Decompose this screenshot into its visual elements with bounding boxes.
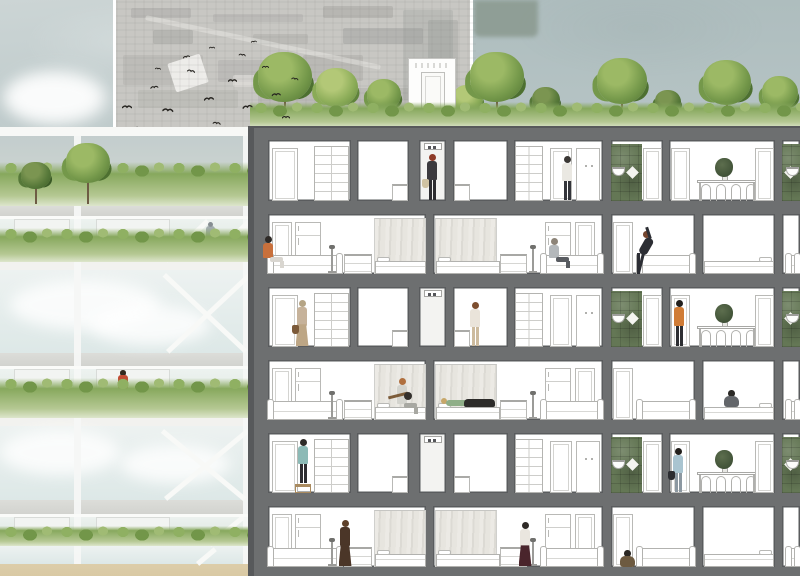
tall-cabinet xyxy=(576,295,600,347)
indicator-light xyxy=(433,439,436,442)
dining-table-leg xyxy=(699,183,701,201)
fridge-split xyxy=(546,381,570,382)
person-sitting xyxy=(396,378,420,414)
door-frame-inner xyxy=(758,151,771,199)
sofa-back xyxy=(637,401,695,420)
wardrobe-shelves xyxy=(515,146,543,201)
person-head xyxy=(265,236,272,243)
dining-chair xyxy=(716,330,726,347)
sofa-arm xyxy=(540,399,547,420)
person-sitting-floor xyxy=(618,550,638,567)
plant-foliage xyxy=(715,158,733,177)
door-frame-inner xyxy=(674,151,687,199)
step-stool xyxy=(295,484,311,493)
person-standing xyxy=(293,300,313,347)
bed xyxy=(436,554,500,567)
person-leg xyxy=(568,181,571,200)
door-frame xyxy=(550,441,572,493)
bed-pillow xyxy=(759,550,772,555)
bed-pillow xyxy=(377,403,390,408)
sofa-arm xyxy=(785,253,792,274)
indicator-light xyxy=(433,293,436,296)
fridge-handle xyxy=(298,530,299,537)
person-leg xyxy=(300,464,303,483)
bed xyxy=(704,554,774,567)
cabinet-unit xyxy=(454,184,470,201)
elevator-indicator xyxy=(424,143,442,150)
person-skirt xyxy=(519,545,532,566)
person-head xyxy=(399,378,406,385)
door-frame-inner xyxy=(758,444,771,491)
bed xyxy=(375,554,426,567)
person-leg xyxy=(433,180,436,200)
plant-foliage xyxy=(715,450,733,469)
person-head xyxy=(676,300,683,307)
bed-pillow xyxy=(438,257,451,262)
door-frame xyxy=(643,148,662,201)
wardrobe-shelves xyxy=(314,146,349,201)
cabinet-unit xyxy=(454,476,470,493)
door-frame-inner xyxy=(275,298,295,345)
dining-chair xyxy=(701,184,711,201)
door-frame xyxy=(671,148,690,201)
person-skirt xyxy=(339,544,352,566)
fridge-split xyxy=(296,527,320,528)
cabinet-handle xyxy=(591,312,593,314)
fridge-handle xyxy=(298,238,299,245)
person-torso xyxy=(298,446,308,465)
door-frame-inner xyxy=(758,298,771,345)
guitar-body xyxy=(404,392,412,400)
fridge-handle xyxy=(298,226,299,231)
person-leg xyxy=(429,180,432,200)
elevator-indicator xyxy=(424,436,442,443)
sofa-back xyxy=(637,548,695,567)
person-torso xyxy=(263,243,273,258)
person-standing xyxy=(516,522,536,567)
floor-lamp-base xyxy=(328,564,337,566)
fridge-split xyxy=(296,381,320,382)
cabinet-handle xyxy=(585,458,587,460)
door-frame-inner xyxy=(616,371,630,418)
door-frame-inner xyxy=(646,298,659,345)
person-head xyxy=(564,156,571,163)
plant-foliage xyxy=(715,304,733,323)
sofa-arm xyxy=(597,399,604,420)
dining-chair xyxy=(731,330,741,347)
person-standing xyxy=(423,154,443,201)
floor-lamp-stem xyxy=(331,393,333,418)
person-bag xyxy=(422,179,429,188)
sofa-arm xyxy=(794,253,800,274)
person-torso xyxy=(562,163,572,182)
floor-lamp-base xyxy=(529,271,538,273)
person-leg xyxy=(472,327,475,346)
person-torso xyxy=(340,527,350,547)
wardrobe-shelves xyxy=(314,293,349,347)
floor-lamp-shade xyxy=(329,538,336,542)
door-frame-inner xyxy=(275,151,295,199)
fridge-split xyxy=(296,235,320,236)
cabinet-unit xyxy=(392,184,408,201)
architectural-collage xyxy=(0,0,800,576)
fridge-handle xyxy=(548,226,549,231)
sofa-back xyxy=(541,548,603,567)
cabinet-handle xyxy=(591,165,593,167)
bed xyxy=(436,261,500,274)
person-sitting xyxy=(548,238,572,268)
door-frame xyxy=(643,295,662,347)
door-frame xyxy=(755,148,774,201)
wardrobe-shelves xyxy=(515,293,543,347)
sofa-arm xyxy=(597,546,604,567)
dining-table-leg xyxy=(699,329,701,347)
person-lying xyxy=(441,397,495,407)
person-head xyxy=(551,238,558,245)
kitchen-counter xyxy=(344,254,372,274)
fridge-handle xyxy=(548,530,549,537)
fridge-handle xyxy=(298,372,299,377)
bed-pillow xyxy=(377,550,390,555)
fridge-split xyxy=(546,527,570,528)
person-body xyxy=(724,396,739,408)
person-head xyxy=(429,154,436,161)
tall-cabinet xyxy=(576,148,600,201)
sofa-arm xyxy=(785,546,792,567)
sofa-arm xyxy=(785,399,792,420)
person-standing xyxy=(670,300,690,347)
door-frame xyxy=(643,441,662,493)
person-torso xyxy=(638,236,655,256)
bed-pillow xyxy=(377,257,390,262)
dining-chair xyxy=(716,184,726,201)
towel xyxy=(626,312,639,325)
sofa-arm xyxy=(794,399,800,420)
dining-chair xyxy=(701,476,711,493)
dining-chair xyxy=(731,476,741,493)
person-head xyxy=(675,448,682,455)
person-head xyxy=(342,520,349,527)
door-frame-inner xyxy=(553,298,569,345)
floor-lamp-shade xyxy=(329,245,336,249)
person-leg xyxy=(676,326,679,346)
floor-lamp-base xyxy=(328,417,337,419)
floor-lamp-base xyxy=(328,271,337,273)
tall-cabinet xyxy=(576,441,600,493)
person-leg xyxy=(680,326,683,346)
building-section xyxy=(0,0,800,576)
door-frame xyxy=(755,441,774,493)
person-torso xyxy=(470,309,480,328)
towel xyxy=(626,166,639,179)
floor-lamp-stem xyxy=(532,247,534,272)
floor-lamp-stem xyxy=(331,540,333,565)
door-frame-inner xyxy=(553,444,569,491)
dining-chair xyxy=(716,476,726,493)
person-bag xyxy=(668,471,675,480)
door-frame xyxy=(550,295,572,347)
sofa-arm xyxy=(267,546,274,567)
sofa-arm xyxy=(597,253,604,274)
sofa-arm xyxy=(540,546,547,567)
person-shin xyxy=(414,407,418,414)
floor-lamp-shade xyxy=(530,245,537,249)
bed-pillow xyxy=(759,403,772,408)
fridge-handle xyxy=(298,384,299,391)
indicator-light xyxy=(428,439,431,442)
fridge-split xyxy=(546,235,570,236)
floor-lamp-shade xyxy=(329,391,336,395)
person-leg xyxy=(679,473,682,492)
bed xyxy=(704,261,774,274)
person-torso xyxy=(549,245,559,258)
sofa-arm xyxy=(336,253,343,274)
person-torso xyxy=(520,529,530,548)
person-torso xyxy=(297,307,307,327)
door-frame-inner xyxy=(646,151,659,199)
person-body xyxy=(620,556,635,568)
indicator-light xyxy=(428,293,431,296)
door-frame xyxy=(755,295,774,347)
person-head xyxy=(472,302,479,309)
fridge-handle xyxy=(548,518,549,523)
door-frame-inner xyxy=(616,225,630,272)
person-head xyxy=(522,522,529,529)
sofa-arm xyxy=(267,399,274,420)
floor-lamp-stem xyxy=(532,393,534,418)
person-standing xyxy=(466,302,486,347)
floor-lamp-stem xyxy=(331,247,333,272)
person-leg xyxy=(675,473,678,492)
dining-chair xyxy=(731,184,741,201)
person-sitting-floor xyxy=(722,390,742,407)
dining-chair xyxy=(701,330,711,347)
bed xyxy=(375,261,426,274)
kitchen-counter xyxy=(500,400,527,420)
sofa-arm xyxy=(689,546,696,567)
indicator-light xyxy=(433,146,436,149)
person-standing xyxy=(558,156,578,201)
person-leg xyxy=(476,327,479,346)
person-torso xyxy=(674,307,684,327)
door-frame xyxy=(613,368,633,420)
fridge-handle xyxy=(548,372,549,377)
bed-pillow xyxy=(438,550,451,555)
bed-pillow xyxy=(759,257,772,262)
cabinet-unit xyxy=(392,476,408,493)
person-bag xyxy=(292,325,299,334)
floor-lamp-shade xyxy=(530,391,537,395)
person-head xyxy=(300,439,307,446)
kitchen-counter xyxy=(344,400,372,420)
person-leg xyxy=(304,464,307,483)
wardrobe-shelves xyxy=(515,439,543,493)
floor-lamp-base xyxy=(529,417,538,419)
door-frame-inner xyxy=(646,444,659,491)
indicator-light xyxy=(428,146,431,149)
towel xyxy=(626,458,639,471)
person-shin xyxy=(566,261,570,268)
cabinet-handle xyxy=(591,458,593,460)
bed xyxy=(704,407,774,420)
cabinet-unit xyxy=(392,330,408,347)
elevator-indicator xyxy=(424,290,442,297)
person-head xyxy=(299,300,306,307)
sofa-arm xyxy=(540,253,547,274)
sofa-arm xyxy=(336,399,343,420)
kitchen-counter xyxy=(500,254,527,274)
cabinet-handle xyxy=(585,165,587,167)
person-stretching xyxy=(630,228,658,274)
sofa-arm xyxy=(689,399,696,420)
fridge-handle xyxy=(548,384,549,391)
person-blanket xyxy=(464,399,495,407)
bed xyxy=(436,407,500,420)
person-leg xyxy=(564,181,567,200)
person-torso xyxy=(673,455,683,474)
cabinet-handle xyxy=(585,312,587,314)
person-shin xyxy=(280,261,284,268)
dining-table-leg xyxy=(699,475,701,493)
person-sitting xyxy=(262,236,286,268)
fridge-handle xyxy=(298,518,299,523)
person-standing xyxy=(294,439,314,484)
person-standing xyxy=(336,520,356,567)
wardrobe-shelves xyxy=(314,439,349,493)
person-standing xyxy=(669,448,689,493)
sofa-arm xyxy=(636,399,643,420)
door-frame-inner xyxy=(275,444,295,491)
sofa-back xyxy=(541,401,603,420)
sofa-arm xyxy=(794,546,800,567)
person-torso xyxy=(427,161,437,181)
door-frame xyxy=(272,148,298,201)
sofa-arm xyxy=(689,253,696,274)
